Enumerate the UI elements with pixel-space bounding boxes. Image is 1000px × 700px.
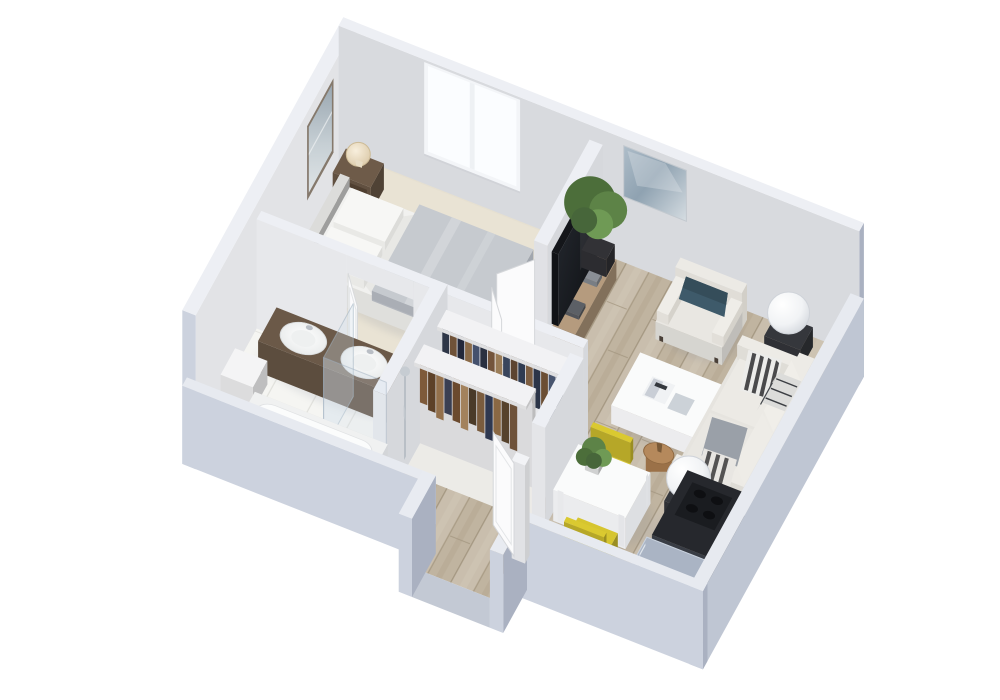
floorplan-3d-render <box>0 0 1000 700</box>
floorplan-render-canvas <box>0 0 1000 700</box>
